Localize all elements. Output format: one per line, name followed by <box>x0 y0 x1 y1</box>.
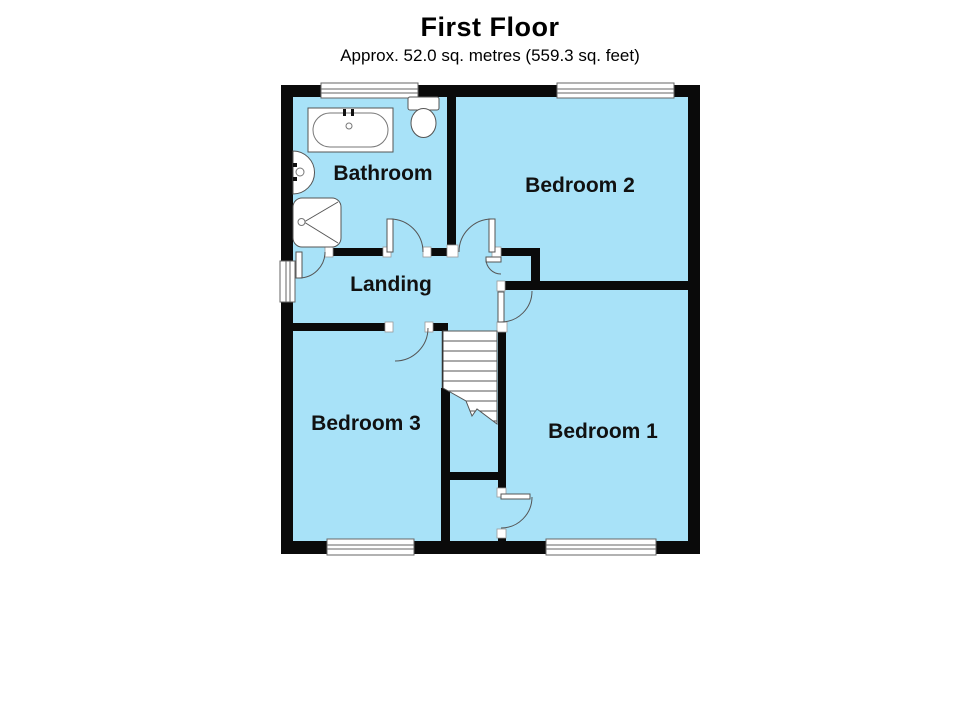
floorplan-drawing <box>0 0 980 712</box>
jamb <box>497 529 506 538</box>
door-leaf-cupboard-top <box>486 257 501 262</box>
window-landing <box>280 261 295 302</box>
wall-bedroom1-bedroom2 <box>505 281 688 290</box>
window-bathroom <box>321 83 418 98</box>
floorplan-page: First Floor Approx. 52.0 sq. metres (559… <box>0 0 980 712</box>
wall-cupboard-stub <box>498 538 506 542</box>
wall-bathroom-landing-b <box>431 248 448 256</box>
door-leaf-bedroom1 <box>498 292 504 322</box>
jamb <box>385 322 393 332</box>
jamb <box>497 281 505 291</box>
wall-understairs <box>441 472 506 480</box>
room-label-bedroom2: Bedroom 2 <box>525 174 635 198</box>
door-leaf-cupboard-bottom <box>501 494 530 499</box>
bathtub <box>308 108 393 152</box>
wall-stairs-left <box>441 388 450 541</box>
wall-stairs-right <box>498 332 506 488</box>
door-leaf-bedroom2 <box>489 219 495 252</box>
door-leaf-bathroom-left <box>296 252 302 278</box>
wall-bathroom-landing-a <box>333 248 384 256</box>
wall-landing-bedroom3-a <box>293 323 385 331</box>
jamb <box>425 322 433 332</box>
jamb <box>423 247 431 257</box>
room-label-bedroom3: Bedroom 3 <box>311 412 421 436</box>
wall-bathroom-bedroom2 <box>447 97 456 248</box>
window-bedroom1 <box>546 539 656 555</box>
wall-right <box>688 85 700 554</box>
wall-left <box>281 85 293 554</box>
jamb <box>447 245 458 257</box>
door-leaf-bathroom-right <box>387 219 393 252</box>
jamb <box>497 322 507 332</box>
window-bedroom3 <box>327 539 414 555</box>
wall-landing-bedroom3-b <box>433 323 448 331</box>
window-bedroom2 <box>557 83 674 98</box>
room-label-landing: Landing <box>350 273 432 297</box>
room-label-bedroom1: Bedroom 1 <box>548 420 658 444</box>
room-label-bathroom: Bathroom <box>333 162 432 186</box>
shower <box>293 198 341 247</box>
jamb <box>325 247 333 257</box>
